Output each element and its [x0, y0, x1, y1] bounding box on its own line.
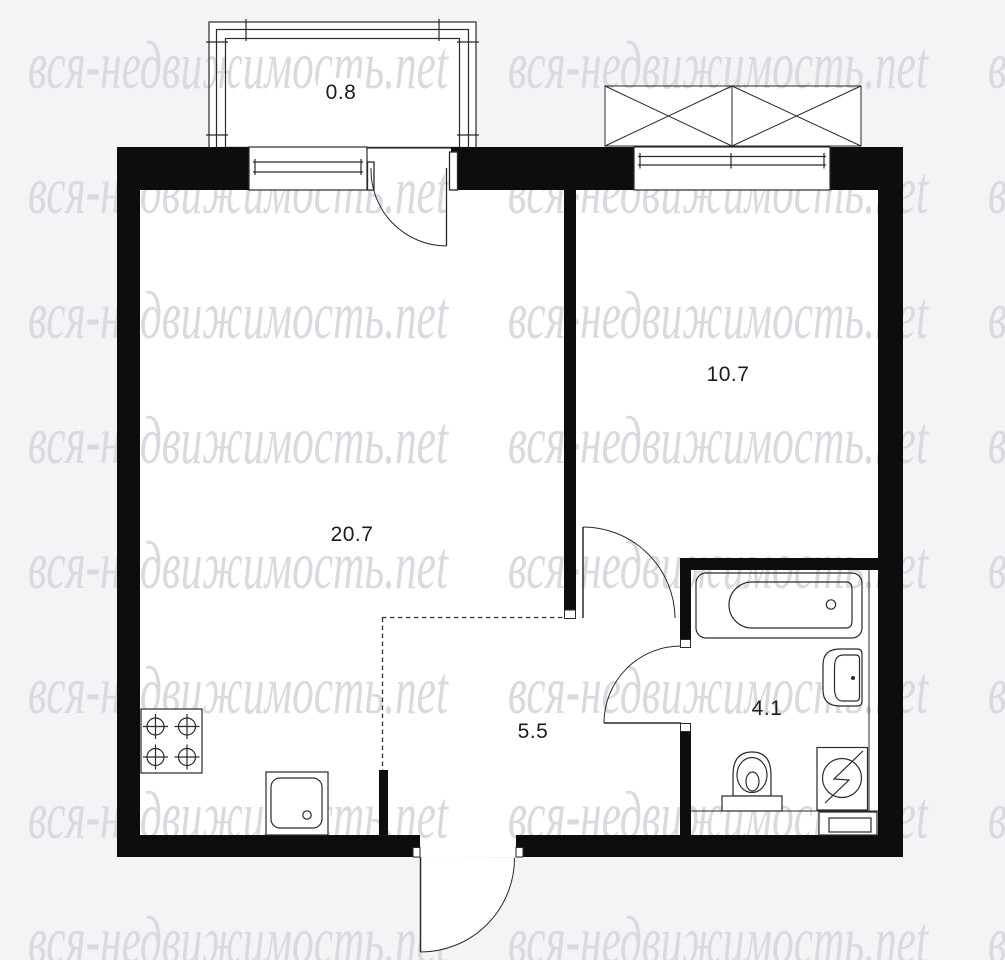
svg-text:5.5: 5.5 [518, 720, 549, 743]
svg-text:вся-недвижимость.net: вся-недвижимость.net [988, 27, 1005, 103]
svg-text:вся-недвижимость.net: вся-недвижимость.net [988, 902, 1005, 960]
svg-text:вся-недвижимость.net: вся-недвижимость.net [28, 652, 449, 728]
svg-text:вся-недвижимость.net: вся-недвижимость.net [508, 652, 929, 728]
svg-text:вся-недвижимость.net: вся-недвижимость.net [988, 402, 1005, 478]
svg-text:вся-недвижимость.net: вся-недвижимость.net [28, 402, 449, 478]
svg-text:вся-недвижимость.net: вся-недвижимость.net [988, 777, 1005, 853]
svg-text:вся-недвижимость.net: вся-недвижимость.net [28, 902, 449, 960]
svg-text:вся-недвижимость.net: вся-недвижимость.net [508, 902, 929, 960]
svg-text:вся-недвижимость.net: вся-недвижимость.net [508, 27, 929, 103]
svg-text:вся-недвижимость.net: вся-недвижимость.net [988, 277, 1005, 353]
svg-text:0.8: 0.8 [326, 81, 357, 104]
svg-text:10.7: 10.7 [707, 363, 750, 386]
svg-text:вся-недвижимость.net: вся-недвижимость.net [988, 527, 1005, 603]
svg-text:вся-недвижимость.net: вся-недвижимость.net [28, 527, 449, 603]
svg-text:вся-недвижимость.net: вся-недвижимость.net [28, 277, 449, 353]
svg-text:4.1: 4.1 [752, 697, 783, 720]
svg-text:вся-недвижимость.net: вся-недвижимость.net [988, 652, 1005, 728]
svg-text:20.7: 20.7 [331, 523, 374, 546]
svg-text:вся-недвижимость.net: вся-недвижимость.net [988, 152, 1005, 228]
